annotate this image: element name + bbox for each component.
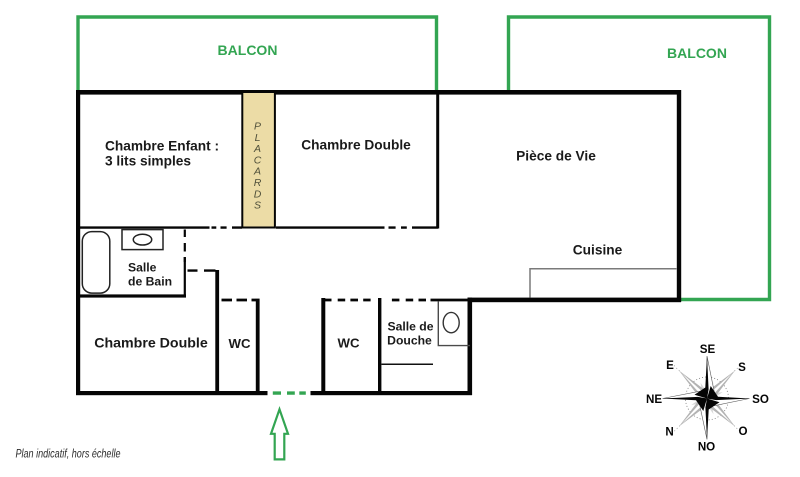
svg-text:SE: SE — [700, 343, 716, 356]
svg-text:Chambre Double: Chambre Double — [301, 138, 411, 153]
svg-text:A: A — [253, 166, 261, 178]
svg-text:E: E — [666, 359, 674, 372]
svg-text:Salle: Salle — [128, 261, 157, 275]
svg-text:A: A — [253, 143, 261, 155]
svg-text:WC: WC — [229, 336, 251, 351]
svg-text:S: S — [738, 361, 746, 374]
svg-text:Salle de: Salle de — [387, 320, 433, 334]
svg-text:Chambre Double: Chambre Double — [94, 336, 208, 352]
svg-text:O: O — [738, 425, 747, 438]
svg-text:3 lits simples: 3 lits simples — [105, 154, 191, 169]
svg-text:N: N — [665, 426, 673, 439]
svg-text:SO: SO — [752, 393, 769, 406]
svg-text:R: R — [254, 177, 262, 189]
svg-text:S: S — [254, 200, 261, 212]
svg-text:C: C — [254, 154, 262, 166]
svg-text:P: P — [254, 121, 261, 133]
svg-text:Cuisine: Cuisine — [573, 243, 623, 258]
svg-text:Plan indicatif, hors échelle: Plan indicatif, hors échelle — [16, 449, 121, 461]
svg-text:BALCON: BALCON — [218, 42, 278, 58]
svg-text:L: L — [255, 132, 261, 144]
svg-text:Douche: Douche — [387, 334, 432, 348]
svg-text:WC: WC — [338, 336, 360, 351]
svg-text:Pièce de Vie: Pièce de Vie — [516, 149, 596, 164]
svg-text:Chambre Enfant :: Chambre Enfant : — [105, 139, 219, 154]
svg-text:NE: NE — [646, 393, 662, 406]
svg-text:D: D — [254, 188, 262, 200]
svg-text:BALCON: BALCON — [667, 45, 727, 61]
svg-text:NO: NO — [698, 441, 715, 454]
svg-text:de Bain: de Bain — [128, 275, 172, 289]
